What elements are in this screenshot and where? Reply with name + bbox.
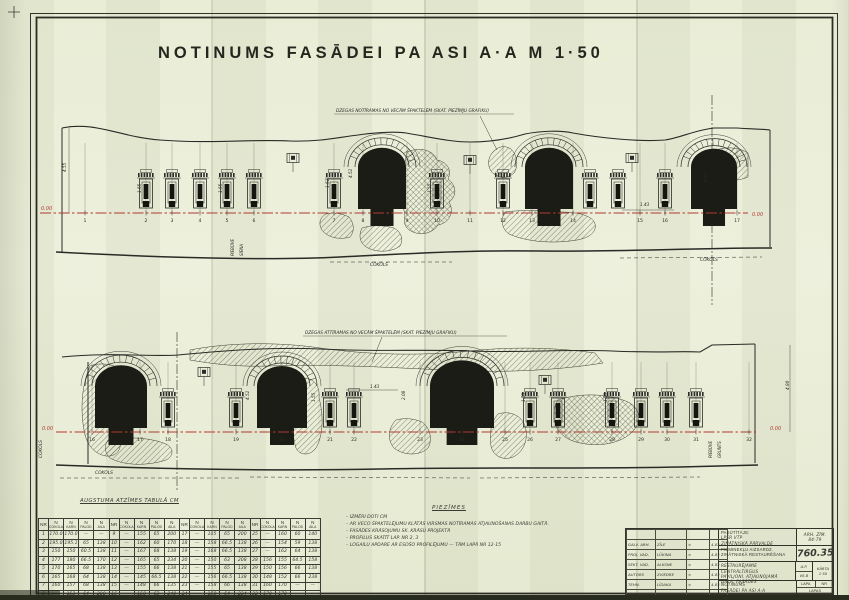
table-cell: 66.5 — [79, 556, 94, 565]
table-cell: 140 — [305, 531, 321, 540]
table-cell: 66 — [290, 565, 305, 574]
signature-cell: AUTORS — [627, 570, 656, 580]
table-header-cell: NAILA — [305, 519, 321, 531]
table-cell: 162 — [275, 548, 290, 557]
table-cell: 170 — [94, 556, 110, 565]
table-cell: 105 — [205, 531, 220, 540]
table-cell: 10 — [109, 539, 119, 548]
table-cell: 66.5 — [220, 548, 235, 557]
table-cell: 27 — [250, 548, 260, 557]
table-cell: 138 — [94, 565, 110, 574]
table-cell: 155 — [205, 565, 220, 574]
table-cell: 165 — [64, 565, 79, 574]
side-label: PIEBŪVE — [708, 440, 713, 458]
axis-number: 13 — [529, 218, 535, 224]
table-caption: AUGSTUMA ATZĪMES TABULĀ CM — [80, 498, 179, 504]
table-cell: 1 — [39, 531, 49, 540]
table-cell: 167 — [134, 548, 149, 557]
axis-number: 17 — [137, 437, 143, 443]
axis-number: 29 — [638, 437, 644, 443]
signature-cell: ≈ — [687, 540, 710, 550]
table-cell: 65 — [149, 556, 164, 565]
table-cell: — — [260, 531, 275, 540]
datum-level-right: 0.00 — [752, 212, 763, 218]
table-cell: 168 — [205, 548, 220, 557]
table-cell: 195.1 — [64, 539, 79, 548]
org-line2: ZINĀTNISKĀ RESTAURĒŠANA — [721, 552, 794, 557]
table-cell: — — [190, 565, 205, 574]
page-title: NOTINUMS FASĀDEI PA ASI A·A M 1·50 — [158, 44, 604, 63]
axis-number: 9 — [406, 218, 409, 224]
table-cell: — — [119, 556, 134, 565]
axis-number: 28 — [609, 437, 615, 443]
axis-number: 24 — [459, 437, 465, 443]
dim-label: 4.50 — [703, 172, 708, 182]
table-cell: 66 — [149, 565, 164, 574]
axis-number: 20 — [279, 437, 285, 443]
table-cell: — — [260, 539, 275, 548]
sheet-title-row: NOTINUMS FASĀDEI PA ASI A·A LAPA NR LAPA… — [719, 581, 833, 594]
table-cell: 15 — [109, 582, 119, 591]
stage-cell: A.P. VII-B — [796, 562, 813, 580]
table-cell: — — [94, 531, 110, 540]
table-cell: 156 — [260, 556, 275, 565]
table-cell: 145 — [134, 573, 149, 582]
table-cell: 170 — [49, 565, 64, 574]
table-cell: — — [190, 539, 205, 548]
table-header-cell: NCOKOLA — [49, 519, 64, 531]
annotation-note: DZEGAS NOTĪRAMAS NO VECĀM ŠPAKTELĒM (SKA… — [336, 107, 489, 114]
table-cell: 208 — [235, 556, 251, 565]
table-cell: 4 — [39, 556, 49, 565]
table-cell: 12 — [109, 556, 119, 565]
signature-cell: SEKT. VAD. — [627, 560, 656, 570]
datum-level-right: 0.00 — [770, 426, 781, 432]
table-cell: 150 — [64, 548, 79, 557]
table-cell: 138 — [235, 573, 251, 582]
title-block-right: PASŪTĪTĀJS: LPSR VTP ZINĀTNISKĀ PĀRVALDE… — [719, 529, 833, 594]
table-row: 2195.0195.16513810—1626017018—15866.5138… — [39, 539, 321, 548]
table-cell: 3 — [39, 548, 49, 557]
facade-elevation-top: 0.000.0012345678910111213141516174.551.5… — [40, 95, 772, 305]
table-cell: 157 — [64, 582, 79, 591]
table-cell: 148 — [134, 582, 149, 591]
signature-cell — [627, 530, 656, 540]
signature-cell: TEHN. — [627, 580, 656, 590]
table-cell: 238 — [305, 573, 321, 582]
table-cell: 156 — [275, 565, 290, 574]
table-cell: 138 — [164, 573, 180, 582]
sheet-title-line2: FASĀDEI PA ASI A·A — [721, 588, 794, 593]
table-row: 61651686413814—14566.513822—15666.513830… — [39, 573, 321, 582]
table-cell: 6 — [39, 573, 49, 582]
detail-callout-box — [464, 156, 476, 175]
table-cell: — — [119, 565, 134, 574]
table-cell: 13 — [109, 565, 119, 574]
arch-number-value: 84-79 — [797, 537, 833, 542]
table-cell: 64 — [79, 573, 94, 582]
note-item: IZMĒRI DOTI CM — [346, 515, 558, 522]
table-cell: 200 — [164, 531, 180, 540]
client-cell: PASŪTĪTĀJS: LPSR VTP ZINĀTNISKĀ PĀRVALDE — [719, 529, 797, 545]
table-cell: 26 — [250, 539, 260, 548]
axis-number: 27 — [555, 437, 561, 443]
notes-list: IZMĒRI DOTI CMAR VECO ŠPAKTELĒJUMU KLĀTĀ… — [346, 515, 558, 549]
dim-label: 1.55 — [603, 392, 608, 402]
table-cell: 21 — [180, 565, 190, 574]
table-cell: 64 — [290, 548, 305, 557]
dim-label: 4.90 — [785, 380, 790, 390]
datum-level-left: 0.00 — [42, 426, 53, 432]
note-item: LOGAILU APDARE AR ESOŠO PROFILĒJUMU — TĀ… — [346, 543, 558, 550]
table-header-cell: NKARN — [64, 519, 79, 531]
organization-cell: PIEMINEKĻU AIZSARDZ. ZINĀTNISKĀ RESTAURĒ… — [719, 546, 797, 561]
cokols-label: COKOLS — [38, 440, 44, 458]
table-cell: 66.5 — [220, 573, 235, 582]
axis-number: 10 — [434, 218, 440, 224]
note-item: FASĀDES KRĀSOJUMU SK. KRĀSU PROJEKTĀ — [346, 529, 558, 536]
dim-label: 1.55 — [218, 183, 223, 193]
table-cell: 30 — [250, 573, 260, 582]
note-item: PROFILUS SKATĪT LAP. NR 2, 3 — [346, 536, 558, 543]
table-cell: 68 — [79, 582, 94, 591]
dim-label: 1.43 — [370, 384, 380, 389]
table-cell: 148 — [260, 573, 275, 582]
note-item: AR VECO ŠPAKTELĒJUMU KLĀTĀS VIRSMAS NOTĪ… — [346, 522, 558, 529]
table-cell: 68 — [149, 548, 164, 557]
table-cell: 138 — [164, 548, 180, 557]
table-row: 71601576813815—1486613523—15866138311601… — [39, 582, 321, 591]
damage-hatch-area — [190, 344, 603, 372]
axis-number: 21 — [327, 437, 333, 443]
table-cell: 170.0 — [49, 531, 64, 540]
signature-cell: ALKSNE — [656, 560, 687, 570]
table-cell: 138 — [305, 565, 321, 574]
table-cell: 138 — [94, 582, 110, 591]
table-cell: 200 — [235, 531, 251, 540]
table-cell: 138 — [94, 548, 110, 557]
table-header-cell: NAILA — [164, 519, 180, 531]
dim-label: 1.55 — [311, 392, 316, 402]
table-cell: 195.0 — [49, 539, 64, 548]
damage-hatch-area — [360, 226, 402, 251]
axis-number: 23 — [417, 437, 423, 443]
table-cell: — — [190, 573, 205, 582]
table-cell: 160 — [275, 531, 290, 540]
object-row: RESTAURĒJAMIE CENTRĀLTIRGUS PAVILJONI. A… — [719, 562, 833, 581]
client-row: PASŪTĪTĀJS: LPSR VTP ZINĀTNISKĀ PĀRVALDE… — [719, 529, 833, 546]
lapas-label: LAPAS — [797, 588, 833, 594]
table-cell: — — [119, 539, 134, 548]
signature-cell: ZVIEDRE — [656, 570, 687, 580]
dim-label: 1.52 — [325, 178, 330, 188]
table-header-cell: NKARN — [134, 519, 149, 531]
table-cell: 60 — [149, 539, 164, 548]
table-cell: 154 — [275, 539, 290, 548]
axis-number: 17 — [734, 218, 740, 224]
table-cell: 9 — [109, 531, 119, 540]
axis-number: 22 — [351, 437, 357, 443]
table-cell: 170.0 — [64, 531, 79, 540]
table-cell: 138 — [94, 573, 110, 582]
table-cell: 18 — [180, 539, 190, 548]
table-cell: 28 — [250, 556, 260, 565]
portal-arch-glyph — [677, 135, 751, 226]
table-header-cell: NR — [109, 519, 119, 531]
table-cell: 150 — [49, 548, 64, 557]
object-line1: RESTAURĒJAMIE CENTRĀLTIRGUS — [721, 563, 793, 574]
axis-number: 26 — [527, 437, 533, 443]
damage-hatch-area — [320, 213, 353, 238]
table-cell: 170 — [275, 582, 290, 591]
axis-number: 6 — [253, 218, 256, 224]
table-cell: 60 — [290, 531, 305, 540]
window-glyph — [612, 179, 625, 208]
table-cell: — — [119, 548, 134, 557]
table-cell: 135 — [164, 582, 180, 591]
table-cell: 66 — [290, 573, 305, 582]
damage-hatch-area — [389, 419, 430, 454]
dim-label: 2.08 — [401, 390, 406, 400]
side-label: SIENA — [239, 244, 244, 256]
table-cell: — — [290, 582, 305, 591]
drawing-sheet: 0.000.0012345678910111213141516174.551.5… — [0, 0, 849, 600]
table-header-cell: NKARN — [275, 519, 290, 531]
table-cell: 138 — [235, 582, 251, 591]
signature-cell: LŪKINA — [656, 550, 687, 560]
organization-row: PIEMINEKĻU AIZSARDZ. ZINĀTNISKĀ RESTAURĒ… — [719, 546, 833, 562]
cokols-label: COKOLS — [370, 262, 388, 268]
side-label: PIEBŪVE — [230, 238, 235, 256]
table-cell: 25 — [250, 531, 260, 540]
signature-cell — [656, 530, 687, 540]
title-block: GALV. ARH.ZĪLE≈4.83PROJ. VAD.LŪKINA≈4.83… — [625, 528, 834, 595]
axis-number: 8 — [362, 218, 365, 224]
table-cell: — — [190, 548, 205, 557]
datum-level-left: 0.00 — [41, 206, 52, 212]
sheet-title-cell: NOTINUMS FASĀDEI PA ASI A·A — [719, 581, 797, 594]
table-cell: 138 — [305, 539, 321, 548]
lapa-label: LAPA — [797, 581, 816, 587]
table-cell: 158 — [305, 556, 321, 565]
dim-label: 4.52 — [245, 390, 250, 400]
axis-number: 30 — [664, 437, 670, 443]
notes-header: PIEZĪMES — [340, 505, 558, 511]
table-cell: 19 — [180, 548, 190, 557]
nr-label: NR — [816, 581, 834, 587]
table-cell: 22 — [180, 573, 190, 582]
cokols-label: COKOLS — [95, 470, 113, 476]
table-cell: 17 — [180, 531, 190, 540]
table-cell: — — [119, 573, 134, 582]
table-row: 1170.0170.0——9—1556520017—1056520025—160… — [39, 531, 321, 540]
table-cell: 138 — [235, 565, 251, 574]
table-cell: 66.5 — [220, 539, 235, 548]
table-header-cell: NAILA — [235, 519, 251, 531]
table-cell: — — [305, 582, 321, 591]
table-cell: 150 — [260, 565, 275, 574]
table-cell: — — [190, 556, 205, 565]
scan-edge — [0, 595, 849, 600]
axis-number: 15 — [637, 218, 643, 224]
table-cell: 5 — [39, 565, 49, 574]
axis-number: 7 — [333, 218, 336, 224]
table-cell: — — [119, 531, 134, 540]
signature-cell: LĪDAKA — [656, 580, 687, 590]
facade-elevation-bottom: 0.000.0016171819202122232425262728293031… — [38, 329, 790, 490]
axis-number: 5 — [226, 218, 229, 224]
table-cell: 138 — [235, 548, 251, 557]
detail-callout-box — [626, 154, 638, 173]
side-label: GRUNTS — [717, 441, 722, 458]
axis-number: 16 — [662, 218, 668, 224]
project-number-cell: 760.35 — [797, 546, 833, 561]
signature-cell: GALV. ARH. — [627, 540, 656, 550]
table-cell: — — [260, 548, 275, 557]
object-cell: RESTAURĒJAMIE CENTRĀLTIRGUS PAVILJONI. A… — [719, 562, 796, 580]
detail-callout-box — [287, 154, 299, 173]
table-cell: 177 — [49, 556, 64, 565]
signature-cell: PROJ. VAD. — [627, 550, 656, 560]
signature-grid: GALV. ARH.ZĪLE≈4.83PROJ. VAD.LŪKINA≈4.83… — [626, 529, 719, 594]
table-cell: 65 — [79, 539, 94, 548]
dim-label: 1.43 — [640, 202, 650, 207]
dim-label: 4.55 — [62, 162, 67, 172]
table-cell: 155 — [275, 556, 290, 565]
table-cell: — — [190, 531, 205, 540]
table-cell: 150 — [205, 556, 220, 565]
table-cell: 138 — [164, 565, 180, 574]
signature-cell: ≈ — [687, 580, 710, 590]
table-cell: 65 — [220, 565, 235, 574]
signature-cell: ZĪLE — [656, 540, 687, 550]
axis-number: 25 — [502, 437, 508, 443]
axis-number: 16 — [89, 437, 95, 443]
table-header-cell: NR — [180, 519, 190, 531]
cokols-label: COKOLS — [700, 257, 718, 263]
table-cell: — — [119, 582, 134, 591]
axis-number: 3 — [171, 218, 174, 224]
sheet-number-cell: LAPA NR LAPAS — [797, 581, 833, 594]
table-cell: 59 — [290, 539, 305, 548]
damage-hatch-area — [490, 413, 526, 459]
table-cell: 160 — [260, 582, 275, 591]
table-cell: 66 — [220, 582, 235, 591]
table-cell: 138 — [235, 539, 251, 548]
table-cell: 162 — [134, 539, 149, 548]
project-number: 760.35 — [797, 547, 833, 559]
dim-label: 1.55 — [137, 183, 142, 193]
axis-number: 31 — [693, 437, 699, 443]
axis-number: 11 — [467, 218, 473, 224]
detail-callout-box — [198, 368, 210, 387]
table-cell: 158 — [205, 539, 220, 548]
table-header-cell: NCOKOLA — [190, 519, 205, 531]
dim-label: 1.55 — [427, 183, 432, 193]
table-cell: 170 — [164, 539, 180, 548]
table-cell: 138 — [305, 548, 321, 557]
table-header-cell: NPALOD — [149, 519, 164, 531]
table-header-cell: NKARN — [205, 519, 220, 531]
table-header-cell: NAILA — [94, 519, 110, 531]
table-cell: 23 — [180, 582, 190, 591]
notes-block: PIEZĪMES IZMĒRI DOTI CMAR VECO ŠPAKTELĒJ… — [340, 505, 558, 549]
table-cell: 31 — [250, 582, 260, 591]
table-cell: 165 — [49, 573, 64, 582]
table-cell: 66 — [149, 582, 164, 591]
window-glyph — [584, 179, 597, 208]
axis-number: 18 — [165, 437, 171, 443]
table-cell: 155 — [134, 531, 149, 540]
table-header-cell: NR — [250, 519, 260, 531]
table-cell: 158 — [205, 582, 220, 591]
signature-cell: ≈ — [687, 550, 710, 560]
table-cell: 180 — [64, 556, 79, 565]
table-row: 417718066.517012—1656523420—150632082815… — [39, 556, 321, 565]
table-cell: 29 — [250, 565, 260, 574]
registration-mark — [8, 6, 20, 18]
measurements-table: NRNCOKOLANKARNNPALODNAILANRNCOKOLANKARNN… — [38, 518, 320, 600]
dim-label: 4.52 — [348, 168, 353, 178]
karta-cell: KĀRTA 1·50 — [813, 562, 833, 580]
axis-number: 2 — [145, 218, 148, 224]
table-header-cell: NR — [39, 519, 49, 531]
detail-callout-box — [539, 376, 551, 395]
table-cell: 14 — [109, 573, 119, 582]
table-cell: 2 — [39, 539, 49, 548]
table-cell: 156 — [205, 573, 220, 582]
table-cell: 63 — [220, 556, 235, 565]
table-cell: 165 — [134, 556, 149, 565]
stage-value: VII-B — [796, 572, 812, 581]
table-cell: 60.5 — [79, 548, 94, 557]
table-cell: 65 — [149, 531, 164, 540]
signature-cell: ≈ — [687, 570, 710, 580]
table-header-cell: NCOKOLA — [119, 519, 134, 531]
axis-number: 1 — [84, 218, 87, 224]
table-cell: 234 — [164, 556, 180, 565]
karta-value: 1·50 — [819, 571, 827, 576]
table-cell: 66.5 — [149, 573, 164, 582]
dim-label: 1.55 — [521, 392, 526, 402]
table-cell: 11 — [109, 548, 119, 557]
signature-cell: ≈ — [687, 560, 710, 570]
table-cell: 155 — [134, 565, 149, 574]
table-header-cell: NCOKOLA — [260, 519, 275, 531]
table-cell: 152 — [275, 573, 290, 582]
table-row: 315015060.513811—1676813819—16866.513827… — [39, 548, 321, 557]
table-cell: 64.5 — [290, 556, 305, 565]
table-cell: 138 — [94, 539, 110, 548]
table-header-cell: NPALOD — [290, 519, 305, 531]
table-row: 51701656813813—1556613821—15565138291501… — [39, 565, 321, 574]
table-cell: — — [79, 531, 94, 540]
stage-label: A.P. — [796, 562, 812, 572]
arch-number-cell: ARH. ZĪM. 84-79 — [797, 529, 833, 545]
axis-number: 14 — [570, 218, 576, 224]
table-header-cell: NPALOD — [79, 519, 94, 531]
axis-number: 12 — [500, 218, 506, 224]
annotation-note: DZEGAS ATTĪRAMAS NO VECĀM ŠPAKTELĒM (SKA… — [305, 329, 457, 336]
axis-number: 32 — [746, 437, 752, 443]
table-cell: 168 — [64, 573, 79, 582]
axis-number: 4 — [199, 218, 202, 224]
table-cell: 65 — [220, 531, 235, 540]
table-cell: 20 — [180, 556, 190, 565]
signature-cell — [687, 530, 710, 540]
table-cell: — — [190, 582, 205, 591]
table-cell: 68 — [79, 565, 94, 574]
